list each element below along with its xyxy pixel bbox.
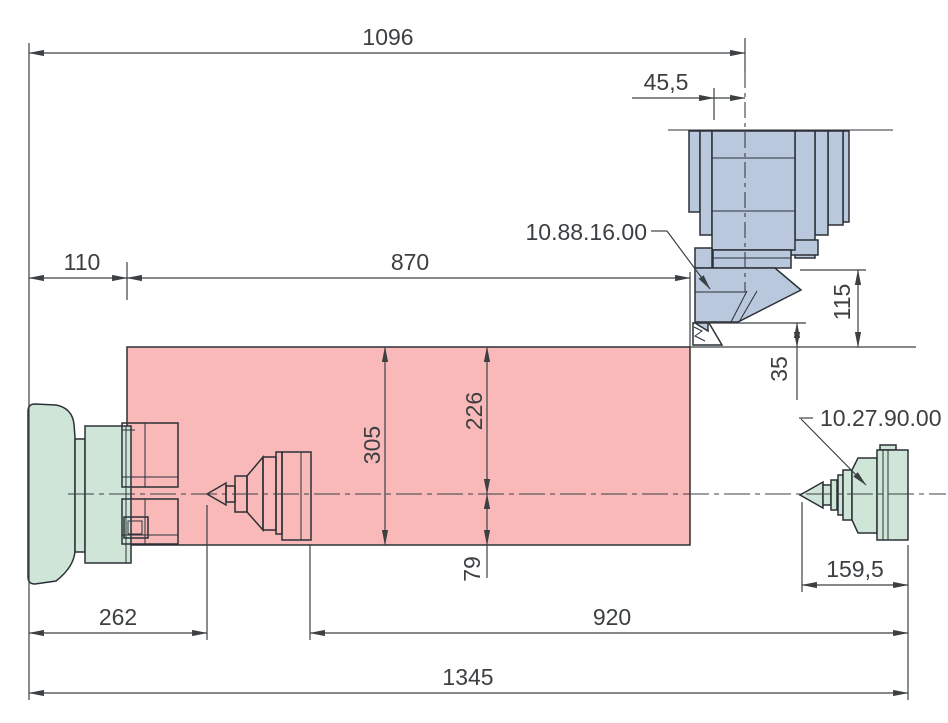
- tool-holder-block: [695, 268, 801, 322]
- tailstock-disc: [877, 450, 908, 540]
- spindle-ring: [75, 439, 85, 552]
- work-envelope-rect: [127, 347, 690, 545]
- turret-body: [712, 131, 795, 250]
- dim-159_5-label: 159,5: [826, 556, 884, 582]
- turret-interface-band: [713, 250, 791, 268]
- tailstock-shaft: [823, 485, 831, 505]
- turret-disc: [689, 131, 700, 212]
- turret-interface-block: [695, 248, 712, 268]
- dim-35-label: 35: [766, 356, 792, 382]
- center-part-label: 10.27.90.00: [820, 405, 942, 431]
- turret-disc: [828, 131, 843, 225]
- turret-part-label: 10.88.16.00: [525, 219, 647, 245]
- turret-assembly: [668, 130, 893, 268]
- dim-1096-label: 1096: [362, 24, 413, 50]
- tool-tip-insert: [695, 323, 708, 331]
- dim-115-label: 115: [829, 284, 855, 321]
- tailstock-ring: [831, 480, 837, 510]
- work-envelope: [127, 347, 690, 545]
- technical-drawing-page: 1096 45,5 110 870 115 35 305 226 79 262 …: [0, 0, 948, 723]
- dim-262-label: 262: [99, 604, 137, 630]
- lathe-working-area-drawing: 1096 45,5 110 870 115 35 305 226 79 262 …: [0, 0, 948, 723]
- turret-disc: [795, 131, 815, 258]
- tailstock-cone: [800, 482, 823, 508]
- tool-holder: [693, 268, 801, 345]
- dim-305-label: 305: [359, 426, 385, 464]
- tailstock-center: [800, 445, 908, 540]
- dim-110-label: 110: [64, 249, 101, 275]
- turret-disc: [843, 131, 849, 222]
- dim-226-label: 226: [461, 392, 487, 430]
- tool-tip-detail: [694, 327, 705, 341]
- turret-disc: [700, 131, 712, 235]
- dim-870-label: 870: [391, 249, 429, 275]
- tailstock-body: [843, 470, 852, 520]
- dim-1345-label: 1345: [442, 664, 493, 690]
- dim-45_5-label: 45,5: [644, 69, 689, 95]
- spindle-housing: [28, 404, 75, 584]
- turret-disc: [815, 131, 828, 235]
- tailstock-taper: [852, 458, 877, 533]
- dim-79-label: 79: [459, 556, 485, 582]
- dim-920-label: 920: [593, 604, 631, 630]
